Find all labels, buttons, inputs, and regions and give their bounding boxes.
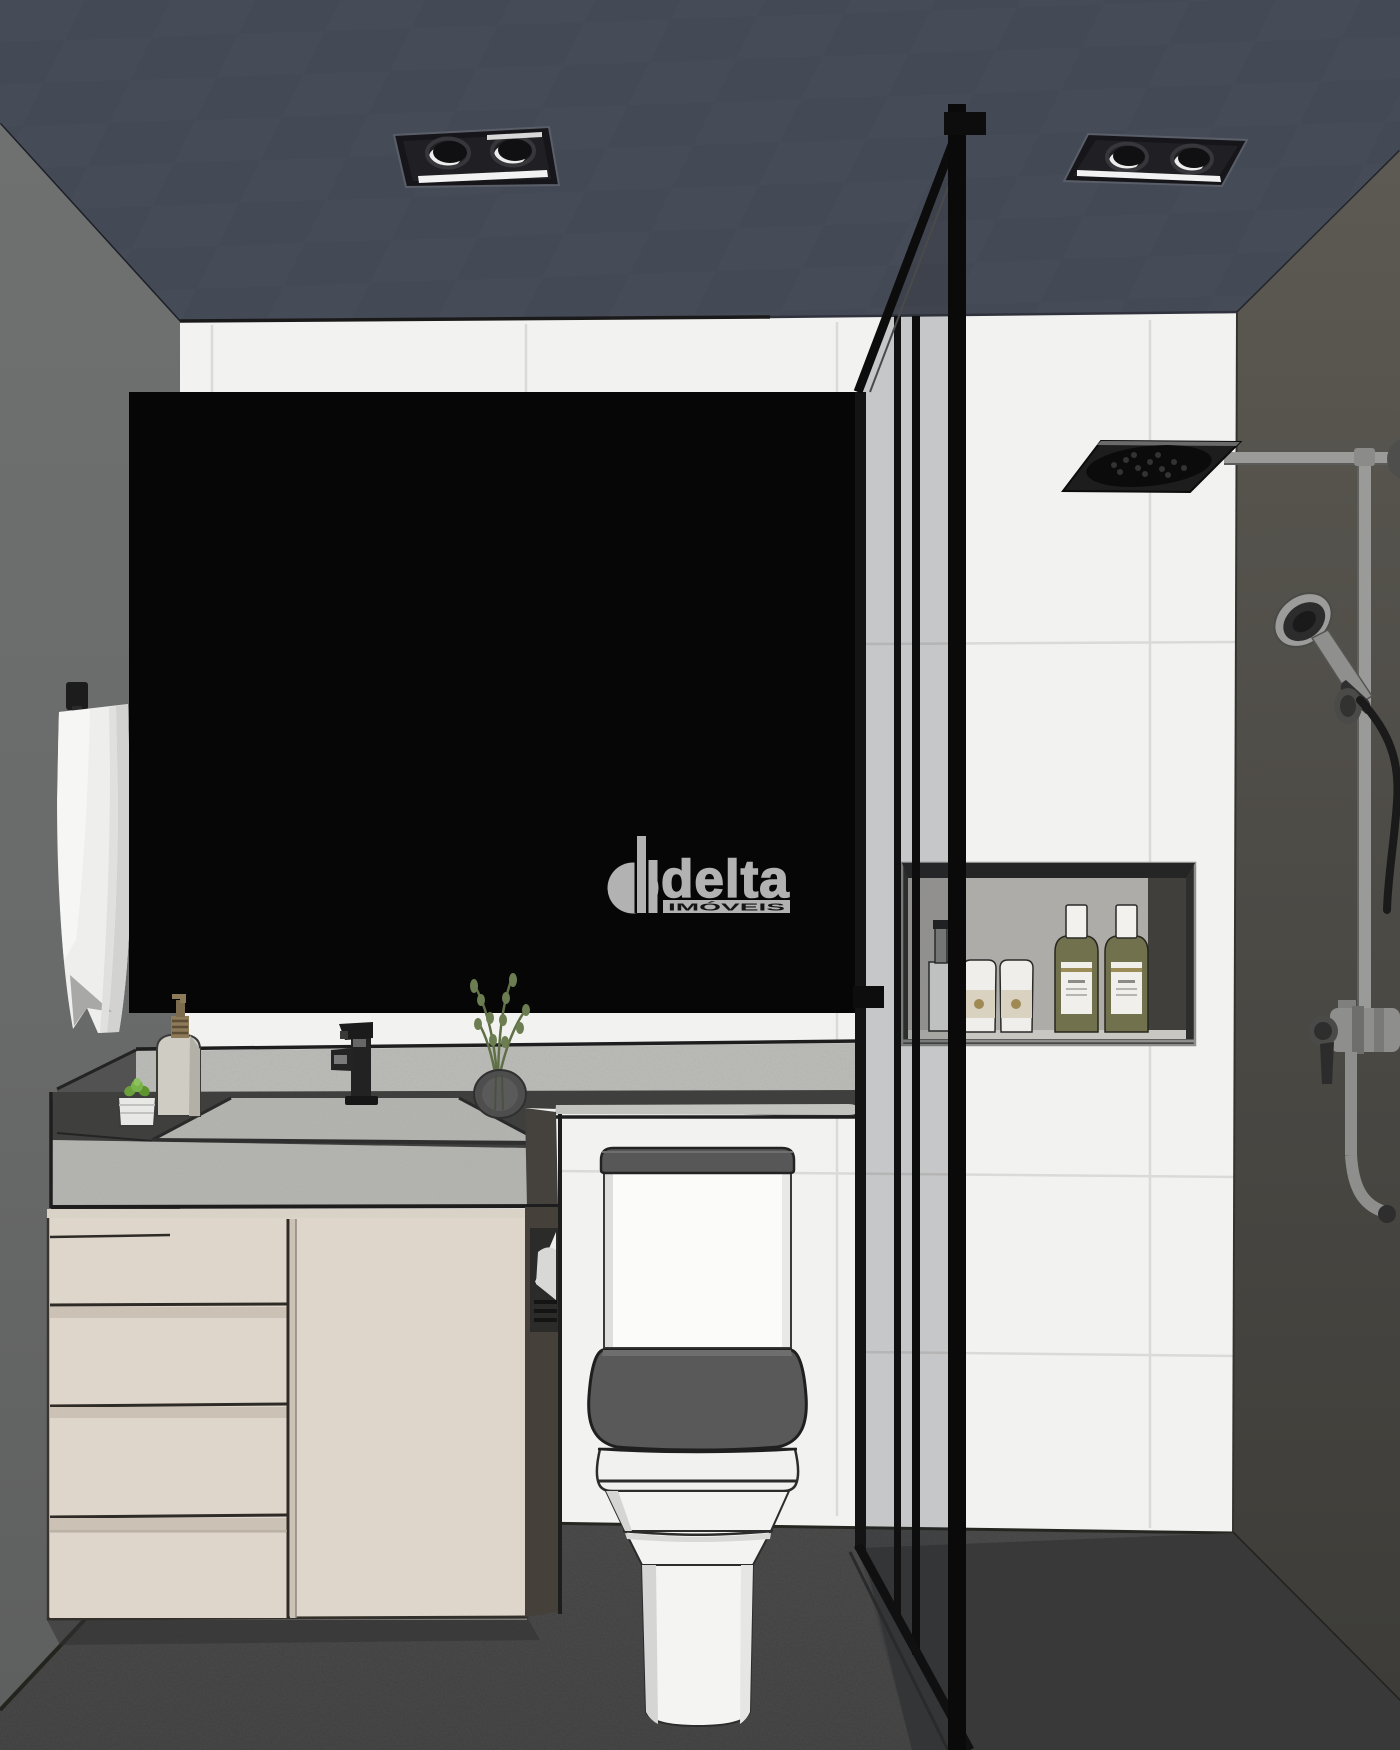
svg-text:IMÓVEIS: IMÓVEIS [668, 901, 785, 914]
